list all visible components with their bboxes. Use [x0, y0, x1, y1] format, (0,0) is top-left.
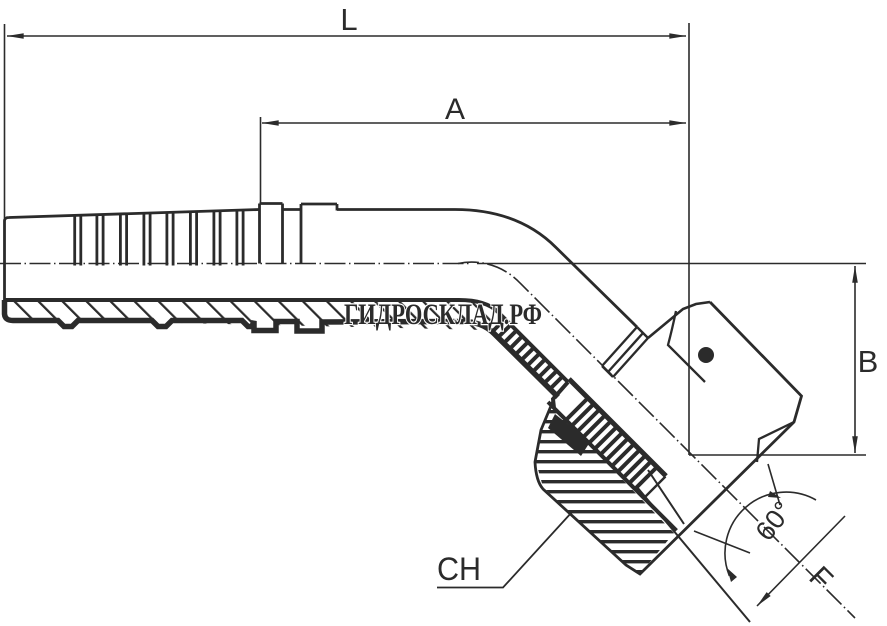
svg-text:60°: 60° [750, 496, 799, 547]
svg-text:A: A [445, 93, 465, 126]
svg-text:F: F [802, 560, 838, 596]
svg-text:CH: CH [437, 551, 481, 587]
svg-text:L: L [340, 2, 357, 37]
svg-text:ГИДРОСКЛАД.РФ: ГИДРОСКЛАД.РФ [344, 298, 542, 331]
svg-text:B: B [858, 344, 879, 379]
